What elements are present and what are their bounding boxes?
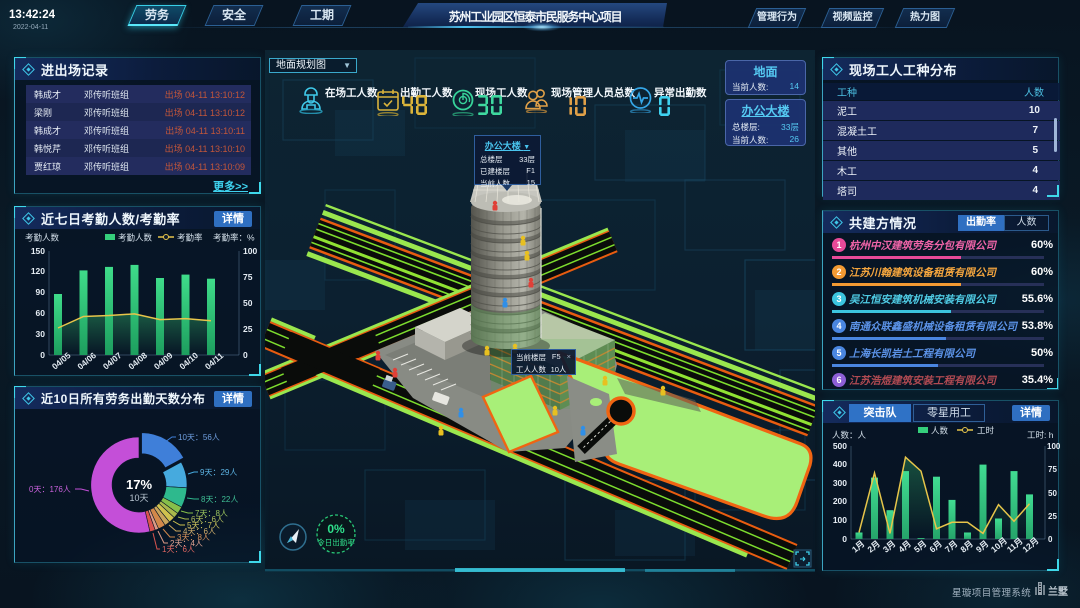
- svg-text:1月: 1月: [850, 538, 867, 554]
- svg-text:考勤人数: 考勤人数: [25, 233, 60, 243]
- svg-text:60: 60: [36, 308, 46, 318]
- svg-text:100: 100: [243, 246, 257, 256]
- svg-text:100: 100: [1047, 442, 1060, 451]
- svg-text:0: 0: [243, 350, 248, 360]
- svg-text:4月: 4月: [896, 538, 913, 554]
- svg-text:17%: 17%: [126, 477, 152, 492]
- svg-text:200: 200: [833, 496, 847, 506]
- svg-text:50: 50: [1048, 489, 1057, 498]
- svg-text:10天：56人: 10天：56人: [178, 433, 220, 442]
- svg-text:500: 500: [833, 441, 847, 451]
- svg-text:今日出勤率: 今日出勤率: [317, 537, 355, 547]
- svg-text:10天: 10天: [129, 493, 148, 503]
- svg-text:5月: 5月: [912, 538, 929, 554]
- svg-text:2月: 2月: [865, 538, 882, 554]
- svg-text:8天：22人: 8天：22人: [201, 495, 238, 504]
- svg-text:0天：176人: 0天：176人: [29, 485, 71, 494]
- svg-text:6月: 6月: [927, 538, 944, 554]
- svg-text:0%: 0%: [327, 522, 345, 536]
- svg-text:25: 25: [1048, 512, 1057, 521]
- svg-text:人数：人: 人数：人: [832, 430, 867, 440]
- svg-text:25: 25: [243, 324, 253, 334]
- svg-text:100: 100: [833, 515, 847, 525]
- svg-text:90: 90: [36, 287, 46, 297]
- svg-text:1天：6人: 1天：6人: [162, 545, 195, 554]
- svg-text:75: 75: [243, 272, 253, 282]
- svg-text:3月: 3月: [881, 538, 898, 554]
- svg-text:300: 300: [833, 478, 847, 488]
- svg-text:工时: h: 工时: h: [1027, 430, 1054, 440]
- svg-text:400: 400: [833, 459, 847, 469]
- svg-text:120: 120: [31, 266, 45, 276]
- svg-text:0: 0: [842, 534, 847, 544]
- svg-text:考勤人数: 考勤人数: [118, 233, 153, 243]
- svg-text:考勤率: 考勤率: [177, 233, 203, 243]
- svg-text:75: 75: [1048, 465, 1057, 474]
- svg-text:8月: 8月: [958, 538, 975, 554]
- svg-text:7月: 7月: [943, 538, 960, 554]
- svg-text:9天：29人: 9天：29人: [200, 468, 237, 477]
- svg-text:150: 150: [31, 246, 45, 256]
- svg-text:考勤率：%: 考勤率：%: [213, 233, 255, 243]
- svg-text:0: 0: [1048, 535, 1053, 544]
- svg-text:人数: 人数: [931, 426, 949, 436]
- svg-text:50: 50: [243, 298, 253, 308]
- svg-text:工时: 工时: [977, 426, 995, 436]
- svg-text:30: 30: [36, 329, 46, 339]
- svg-text:0: 0: [40, 350, 45, 360]
